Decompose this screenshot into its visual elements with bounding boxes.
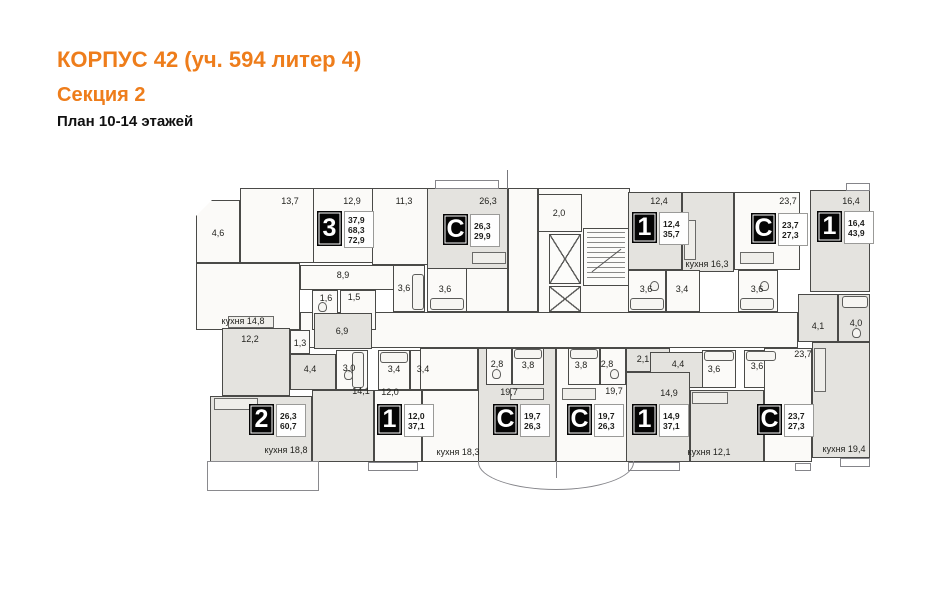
room-area-label: 12,4 [650,196,668,206]
room-area-label: 4,6 [212,228,225,238]
room-area-label: 8,9 [337,270,350,280]
elevator-shaft-1 [549,234,581,284]
room-area-label: 3,6 [708,364,721,374]
room-area-label: 1,3 [294,338,307,348]
apartment-badge-с-27_3[interactable]: С23,727,3 [757,404,814,437]
apartment-badge-с-29_9[interactable]: С26,329,9 [443,214,500,247]
room-area-label: 2,8 [491,359,504,369]
tub-icon [746,351,776,361]
apartment-areas: 12,037,1 [404,404,434,437]
room-area-label: 19,7 [605,386,623,396]
apartment-badge-2-60_7[interactable]: 226,360,7 [249,404,306,437]
elevator-shaft-2 [549,286,581,312]
apartment-type-glyph: С [493,404,518,435]
counter-icon [814,348,826,392]
room-area-label: 23,7 [794,349,812,359]
room-area-label: 3,6 [751,284,764,294]
room-area-label: 3,8 [575,360,588,370]
counter-icon [692,392,728,404]
balcony-slab [628,462,680,471]
terrace-outline [207,461,319,491]
apartment-areas: 26,360,7 [276,404,306,437]
tub-icon [740,298,774,310]
apartment-type-glyph: С [757,404,782,435]
apartment-areas: 37,968,372,9 [344,211,374,248]
tub-icon [380,352,408,363]
hall-4-1 [798,294,838,342]
floorplan-page: КОРПУС 42 (уч. 594 литер 4) Секция 2 Пла… [0,0,941,600]
apartment-badge-1-37_1[interactable]: 114,937,1 [632,404,689,437]
apartment-type-glyph: С [567,404,592,435]
room-area-label: кухня 14,8 [222,316,265,326]
tub-icon [412,274,424,310]
tub-icon [842,296,868,308]
apartment-areas: 19,726,3 [520,404,550,437]
room-area-label: 6,9 [336,326,349,336]
room-area-label: 14,9 [660,388,678,398]
room-area-label: 2,0 [553,208,566,218]
room-area-label: 4,4 [304,364,317,374]
room-area-label: 3,6 [640,284,653,294]
apartment-areas: 26,329,9 [470,214,500,247]
room-area-label: 2,1 [637,354,650,364]
room-area-label: кухня 18,3 [437,447,480,457]
stairwell [583,228,629,286]
balcony-slab [846,183,870,191]
floor-plan: 4,613,712,911,326,32,012,4кухня 16,323,7… [0,0,941,600]
room-area-label: кухня 16,3 [686,259,729,269]
room-area-label: 3,4 [388,364,401,374]
apartment-areas: 12,435,7 [659,212,689,245]
room-area-label: 12,0 [381,387,399,397]
wc-icon [610,369,619,379]
balcony-slab [795,463,811,471]
room-area-label: 1,5 [348,292,361,302]
balcony-slab [368,462,418,471]
counter-icon [740,252,774,264]
apartment-type-glyph: С [443,214,468,245]
room-area-label: 2,8 [601,359,614,369]
room-area-label: 3,4 [417,364,430,374]
apartment-badge-с-26_3[interactable]: С19,726,3 [567,404,624,437]
room-13-7 [240,188,314,263]
room-area-label: 3,0 [343,363,356,373]
room-area-label: кухня 12,1 [688,447,731,457]
apartment-type-glyph: 2 [249,404,274,435]
balcony-slab [840,458,870,467]
room-area-label: 14,1 [352,386,370,396]
room-area-label: 3,6 [439,284,452,294]
balcony-slab [435,180,499,189]
apartment-type-glyph: 3 [317,211,342,246]
apartment-badge-1-35_7[interactable]: 112,435,7 [632,212,689,245]
apartment-areas: 14,937,1 [659,404,689,437]
room-area-label: 3,6 [398,283,411,293]
apartment-badge-с-26_3[interactable]: С19,726,3 [493,404,550,437]
room-area-label: 3,8 [522,360,535,370]
room-area-label: 3,6 [751,361,764,371]
room-area-label: 4,0 [850,318,863,328]
apartment-badge-1-37_1[interactable]: 112,037,1 [377,404,434,437]
room-area-label: кухня 18,8 [265,445,308,455]
wc-icon [852,328,861,338]
tub-icon [630,298,664,310]
room-area-label: 11,3 [396,196,413,206]
apartment-badge-1-43_9[interactable]: 116,443,9 [817,211,874,244]
room-area-label: 12,9 [343,196,361,206]
apartment-badge-с-27_3[interactable]: С23,727,3 [751,213,808,246]
wc-icon [318,302,327,312]
room-area-label: кухня 19,4 [823,444,866,454]
tub-icon [430,298,464,310]
apartment-type-glyph: С [751,213,776,244]
room-area-label: 1,6 [320,293,333,303]
apartment-areas: 19,726,3 [594,404,624,437]
room-area-label: 16,4 [842,196,860,206]
balcony-slab [507,170,508,189]
wc-icon [492,369,501,379]
room-area-label: 3,4 [676,284,689,294]
apartment-areas: 23,727,3 [784,404,814,437]
apartment-type-glyph: 1 [817,211,842,242]
room-area-label: 4,4 [672,359,685,369]
apartment-type-glyph: 1 [632,404,657,435]
room-14-1 [312,390,374,462]
room-area-label: 19,7 [500,387,518,397]
counter-icon [472,252,506,264]
counter-icon [562,388,596,400]
apartment-areas: 16,443,9 [844,211,874,244]
room-area-label: 4,1 [812,321,825,331]
apartment-areas: 23,727,3 [778,213,808,246]
studio-a-entry [466,268,508,312]
entry-lobby [508,188,538,312]
tub-icon [704,351,734,361]
apartment-badge-3-72_9[interactable]: 337,968,372,9 [317,211,374,248]
room-area-label: 26,3 [479,196,497,206]
curved-balcony [478,461,634,490]
apartment-type-glyph: 1 [632,212,657,243]
apartment-type-glyph: 1 [377,404,402,435]
tub-icon [570,349,598,359]
tub-icon [514,349,542,359]
room-area-label: 23,7 [779,196,797,206]
room-area-label: 12,2 [241,334,259,344]
room-area-label: 13,7 [281,196,299,206]
